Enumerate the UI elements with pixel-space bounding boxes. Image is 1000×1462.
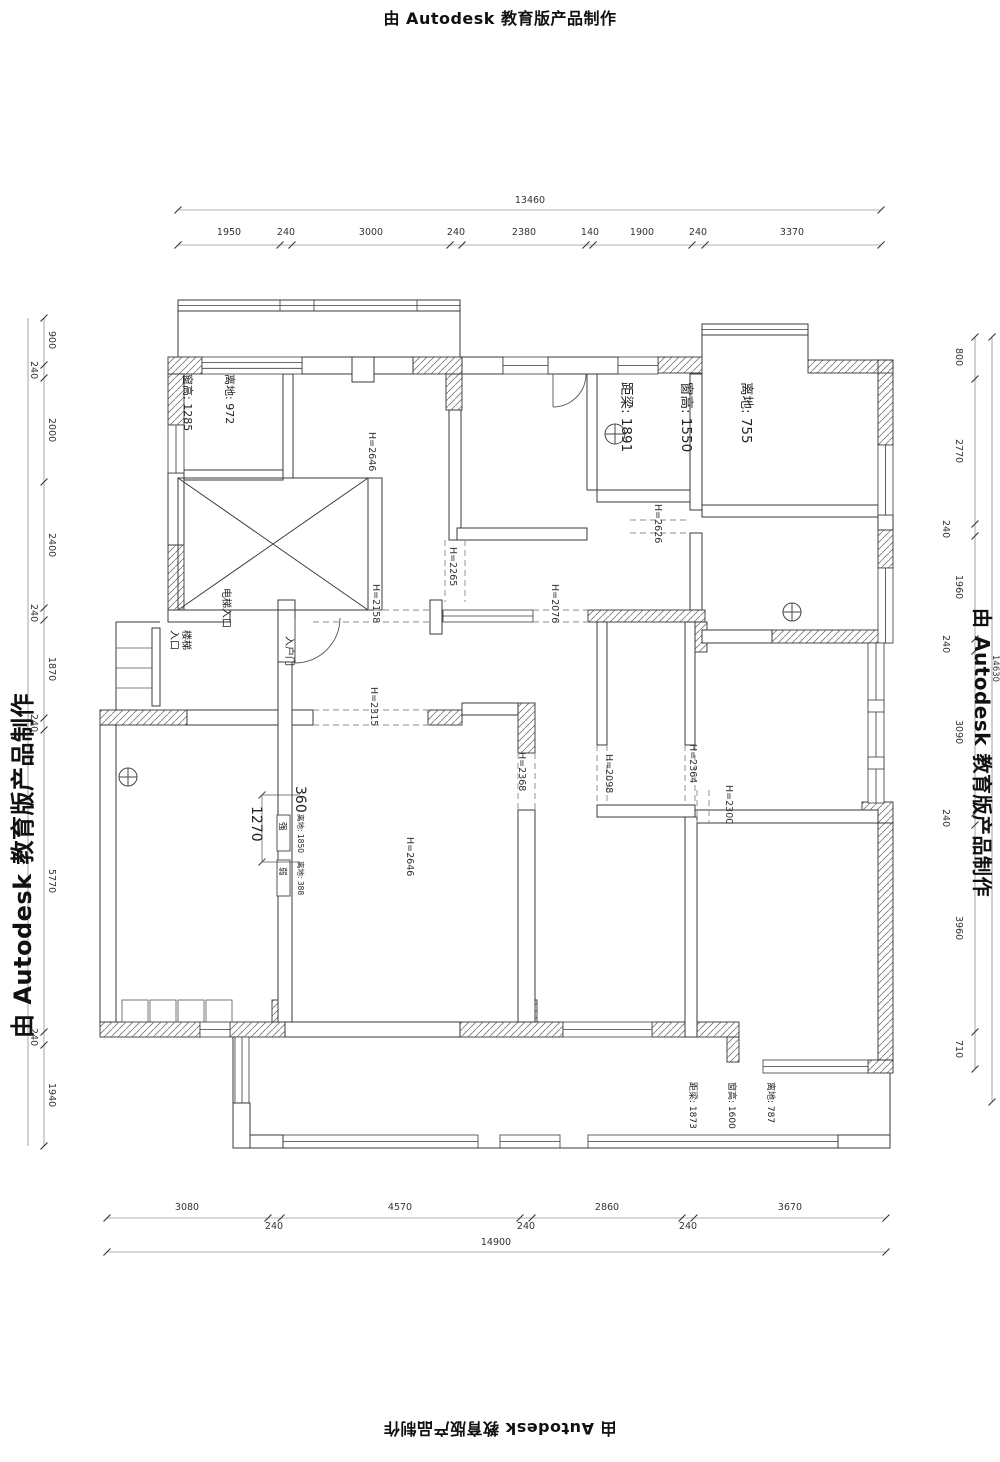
- dim-right-total: 14630: [990, 655, 1000, 682]
- entry-door-label: 入户门: [283, 636, 298, 666]
- dim-bottom-240-1: 240: [517, 1222, 535, 1232]
- dim-left-seg-4: 240: [28, 604, 38, 622]
- dim-top-total: 13460: [515, 196, 545, 206]
- height-label-2158: H=2158: [370, 584, 380, 623]
- elevator-shaft: [178, 478, 368, 610]
- height-label-2626: H=2626: [652, 504, 662, 543]
- dim-left-seg-2: 2000: [46, 418, 56, 442]
- dim-right-seg-4: 240: [940, 635, 950, 653]
- dim-right-seg-5: 3090: [953, 720, 963, 744]
- height-label-living: H=2646: [404, 837, 414, 876]
- window-note-nw-line2: 窗高: 1285: [180, 374, 194, 431]
- strong-electric-box-note: 离地: 1850: [295, 814, 306, 853]
- dim-right-seg-6: 240: [940, 809, 950, 827]
- window-note-ne-line1: 离地: 755: [736, 382, 756, 452]
- dim-top-seg-8: 3370: [780, 228, 804, 238]
- dim-top-seg-7: 240: [689, 228, 707, 238]
- wall-dim-1270-label: 1270: [248, 806, 264, 842]
- window-note-ne-line2: 窗高: 1550: [676, 382, 696, 452]
- dim-right-seg-0: 800: [953, 348, 963, 366]
- watermark-top: 由 Autodesk 教育版产品制作: [0, 5, 1000, 29]
- dim-top-seg-2: 3000: [359, 228, 383, 238]
- window-note-nw-line1: 离地: 972: [222, 374, 236, 431]
- weak-electric-box-note: 离地: 388: [295, 861, 306, 895]
- height-label-2300: H=2300: [723, 785, 733, 824]
- weak-electric-box-label: 弱: [277, 867, 289, 876]
- dim-bottom-240-0: 240: [265, 1222, 283, 1232]
- drain-symbol: [783, 603, 801, 621]
- dim-left-seg-9: 1940: [46, 1083, 56, 1107]
- height-label-2076: H=2076: [549, 584, 559, 623]
- wall-dim-360-label: 360: [292, 786, 308, 813]
- window-note-nw: 离地: 972 窗高: 1285: [166, 374, 264, 431]
- dim-right-seg-2: 240: [940, 520, 950, 538]
- floor-plan-canvas: 由 Autodesk 教育版产品制作 由 Autodesk 教育版产品制作 由 …: [0, 0, 1000, 1462]
- height-label-2315: H=2315: [368, 687, 378, 726]
- dim-top-seg-6: 1900: [630, 228, 654, 238]
- dim-bottom-seg-1: 4570: [388, 1203, 412, 1213]
- height-label-top-room: H=2646: [366, 432, 376, 471]
- dim-right-seg-7: 3960: [953, 916, 963, 940]
- window-note-se: 离地: 787 窗高: 1600 距梁: 1873: [672, 1082, 802, 1129]
- height-label-2364: H=2364: [687, 744, 697, 783]
- dim-left-seg-7: 5770: [46, 869, 56, 893]
- dim-left-seg-3: 2400: [46, 533, 56, 557]
- drain-symbol: [119, 768, 137, 786]
- dim-top-seg-1: 240: [277, 228, 295, 238]
- watermark-left: 由 Autodesk 教育版产品制作: [3, 693, 38, 1038]
- dim-top-seg-4: 2380: [512, 228, 536, 238]
- dim-bottom-seg-0: 3080: [175, 1203, 199, 1213]
- window-note-ne-line3: 距梁: 1891: [616, 382, 636, 452]
- dim-bottom-seg-3: 3670: [778, 1203, 802, 1213]
- window-note-ne: 离地: 755 窗高: 1550 距梁: 1891: [596, 382, 796, 452]
- height-label-2098: H=2098: [603, 754, 613, 793]
- watermark-bottom: 由 Autodesk 教育版产品制作: [0, 1418, 1000, 1442]
- dim-top-seg-5: 140: [581, 228, 599, 238]
- height-label-2368: H=2368: [516, 752, 526, 791]
- dim-right-seg-3: 1960: [953, 575, 963, 599]
- dim-top-seg-3: 240: [447, 228, 465, 238]
- strong-electric-box-label: 强: [277, 822, 289, 831]
- dim-left-seg-6: 240: [28, 714, 38, 732]
- dim-left-seg-8: 240: [28, 1028, 38, 1046]
- dim-bottom-seg-2: 2860: [595, 1203, 619, 1213]
- watermark-right: 由 Autodesk 教育版产品制作: [969, 608, 998, 897]
- height-label-2265: H=2265: [447, 547, 457, 586]
- dim-left-seg-5: 1870: [46, 657, 56, 681]
- stairs: [116, 648, 152, 688]
- stair-entry-label: 楼梯 入口: [167, 630, 191, 650]
- dim-left-seg-0: 900: [46, 331, 56, 349]
- dim-right-seg-1: 2770: [953, 439, 963, 463]
- dim-bottom-240-2: 240: [679, 1222, 697, 1232]
- window-note-se-line3: 距梁: 1873: [685, 1082, 698, 1129]
- wardrobe: [122, 1000, 232, 1022]
- dim-top-seg-0: 1950: [217, 228, 241, 238]
- elevator-entry-label: 电梯入口: [220, 588, 235, 628]
- dim-bottom-total: 14900: [481, 1238, 511, 1248]
- dim-right-seg-8: 710: [953, 1040, 963, 1058]
- dim-left-seg-1: 240: [28, 361, 38, 379]
- window-note-se-line2: 窗高: 1600: [724, 1082, 737, 1129]
- window-note-se-line1: 离地: 787: [763, 1082, 776, 1129]
